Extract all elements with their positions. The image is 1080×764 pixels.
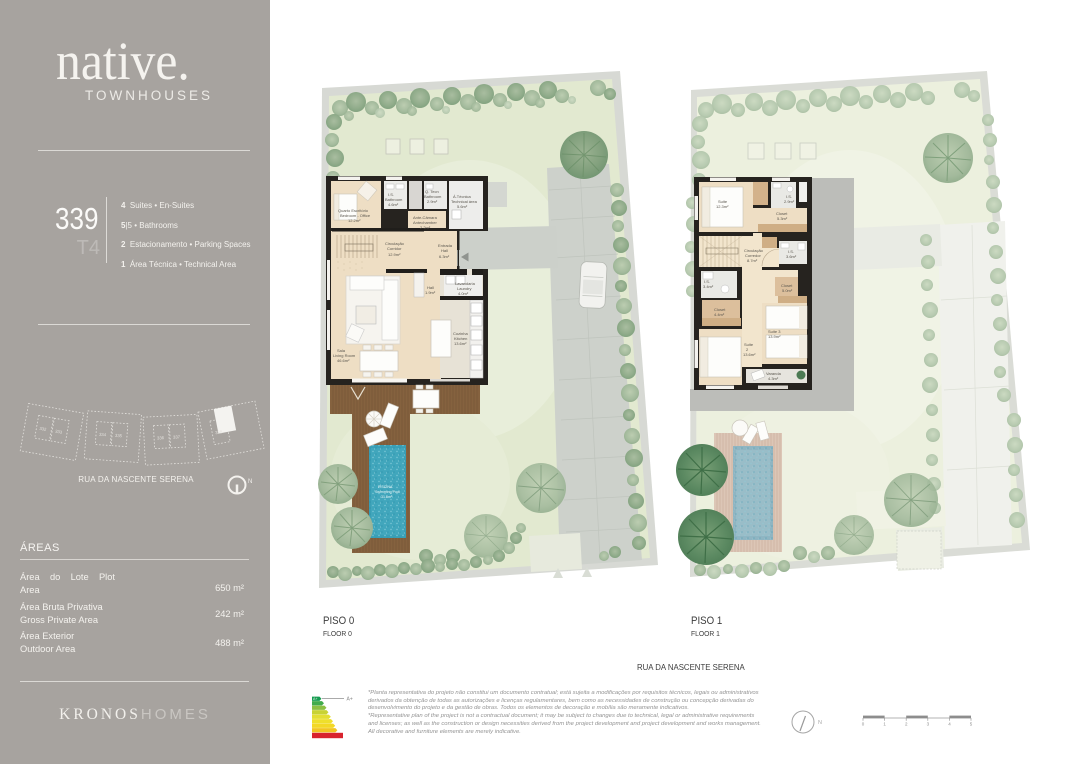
svg-text:1: 1 — [883, 722, 886, 727]
svg-text:4.0m²: 4.0m² — [458, 291, 469, 296]
svg-text:N: N — [818, 720, 822, 726]
svg-text:2: 2 — [905, 722, 908, 727]
svg-text:N: N — [248, 479, 252, 485]
svg-text:31.5m²: 31.5m² — [381, 495, 393, 499]
svg-text:5.3m²: 5.3m² — [777, 216, 788, 221]
svg-text:5.0m²: 5.0m² — [782, 288, 793, 293]
svg-text:4: 4 — [948, 722, 951, 727]
svg-text:2.2m²: 2.2m² — [420, 225, 431, 230]
svg-text:335: 335 — [115, 433, 123, 439]
svg-text:Hall: Hall — [441, 248, 448, 253]
svg-text:334: 334 — [99, 432, 107, 438]
svg-text:13.6m²: 13.6m² — [454, 341, 467, 346]
svg-text:5.6m²: 5.6m² — [457, 204, 468, 209]
svg-text:333: 333 — [55, 429, 63, 435]
svg-text:3.6m²: 3.6m² — [786, 254, 797, 259]
svg-text:6.3m²: 6.3m² — [439, 254, 450, 259]
svg-text:A+: A+ — [313, 697, 318, 701]
svg-text:4.6m²: 4.6m² — [388, 202, 399, 207]
svg-text:3: 3 — [927, 722, 930, 727]
svg-text:332: 332 — [39, 426, 47, 432]
svg-text:Swimming Pool: Swimming Pool — [375, 490, 400, 494]
svg-text:13.6m²: 13.6m² — [743, 352, 756, 357]
svg-text:12.3m²: 12.3m² — [716, 204, 729, 209]
svg-text:46.6m²: 46.6m² — [337, 358, 350, 363]
svg-text:13.9m²: 13.9m² — [768, 334, 781, 339]
svg-text:A+: A+ — [347, 697, 353, 703]
svg-text:8.7m²: 8.7m² — [747, 258, 758, 263]
svg-text:0: 0 — [862, 722, 865, 727]
svg-text:4.4m²: 4.4m² — [714, 312, 725, 317]
svg-text:336: 336 — [157, 435, 165, 440]
svg-text:2.9m²: 2.9m² — [784, 199, 795, 204]
svg-text:12.2m²: 12.2m² — [348, 218, 361, 223]
svg-text:Corridor: Corridor — [387, 246, 402, 251]
svg-text:3.4m²: 3.4m² — [703, 284, 714, 289]
svg-text:5: 5 — [970, 722, 973, 727]
svg-text:2.9m²: 2.9m² — [427, 199, 438, 204]
svg-text:1.9m²: 1.9m² — [425, 290, 436, 295]
svg-text:4.3m²: 4.3m² — [768, 376, 779, 381]
svg-text:PISCINA: PISCINA — [378, 485, 393, 489]
svg-text:337: 337 — [173, 434, 181, 439]
svg-text:12.9m²: 12.9m² — [388, 252, 401, 257]
